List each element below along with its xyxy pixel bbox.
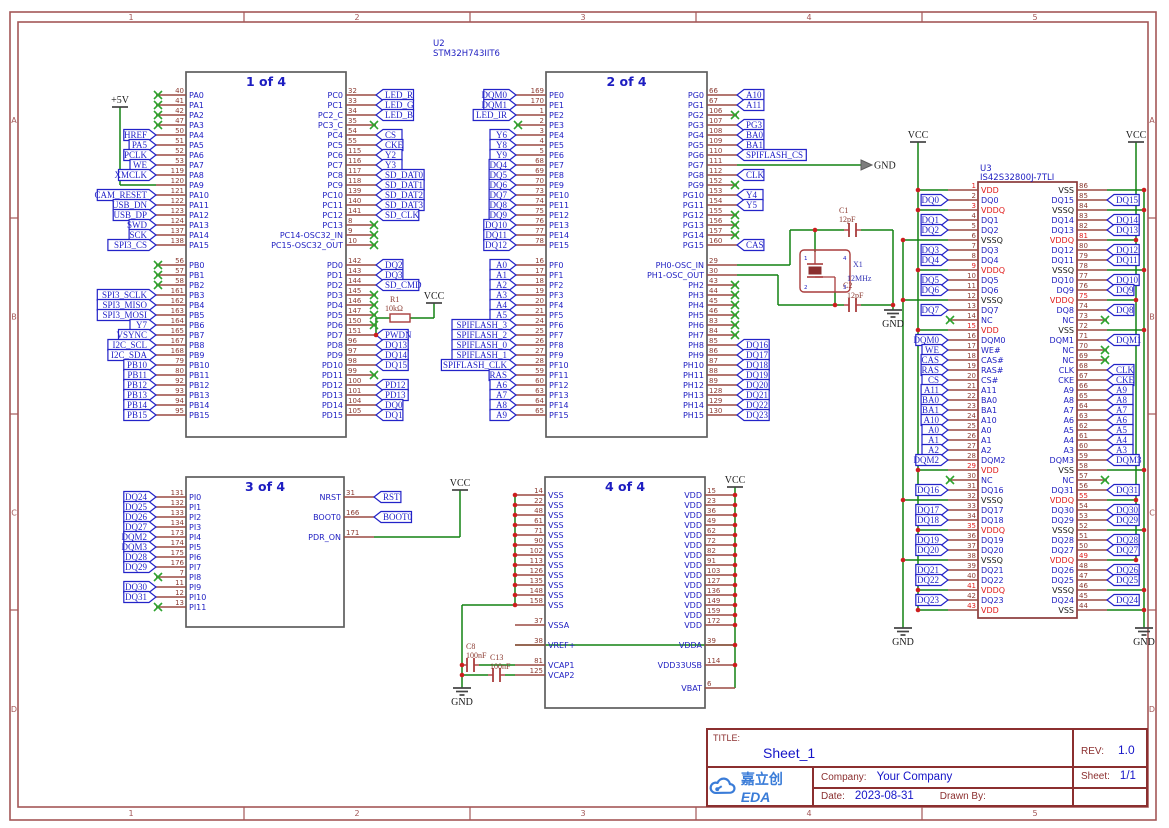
svg-text:76: 76 <box>535 217 544 225</box>
company-value[interactable]: Your Company <box>877 771 953 783</box>
vcc-symbol[interactable]: VCC <box>1126 130 1147 142</box>
net-flag-A3[interactable]: A3 <box>1107 445 1133 456</box>
net-flag-DQ17[interactable]: DQ17 <box>737 350 769 361</box>
net-flag-DQ18[interactable]: DQ18 <box>737 360 769 371</box>
svg-text:A8: A8 <box>496 400 507 410</box>
svg-text:PG4: PG4 <box>688 131 704 140</box>
net-flag-A5[interactable]: A5 <box>1107 425 1133 436</box>
svg-text:58: 58 <box>175 277 184 285</box>
net-flag-DQ23[interactable]: DQ23 <box>916 595 948 606</box>
svg-text:62: 62 <box>707 527 716 535</box>
net-flag-PB12[interactable]: PB12 <box>124 380 156 391</box>
net-flag-DQ4[interactable]: DQ4 <box>921 255 948 266</box>
net-flag-A2[interactable]: A2 <box>490 280 516 291</box>
svg-text:119: 119 <box>171 167 184 175</box>
svg-text:PH6: PH6 <box>688 321 704 330</box>
svg-text:A4: A4 <box>1063 436 1074 445</box>
svg-text:112: 112 <box>709 167 722 175</box>
svg-text:1: 1 <box>128 809 133 818</box>
net-flag-DQ2[interactable]: DQ2 <box>921 225 948 236</box>
net-flag-PD13[interactable]: PD13 <box>376 390 408 401</box>
svg-text:VSS: VSS <box>548 501 564 510</box>
chip-u3-sdram[interactable]: 1VDD2DQ0DQ03VDDQ4DQ1DQ15DQ2DQ26VSSQ7DQ3D… <box>903 182 1144 618</box>
components[interactable]: R110kΩC112pFC212pFC8100nFC13100nF1234X11… <box>385 206 872 682</box>
svg-text:162: 162 <box>171 297 184 305</box>
net-flag-A9[interactable]: A9 <box>1107 385 1133 396</box>
net-flag-A2[interactable]: A2 <box>922 445 948 456</box>
net-flag-BA1[interactable]: BA1 <box>921 405 948 416</box>
chip-u2-block4[interactable]: 4 of 414VSS22VSS48VSS61VSS71VSS90VSS102V… <box>515 477 735 708</box>
chip-u2-block3[interactable]: 3 of 4131PI0DQ24132PI1DQ25133PI2DQ26134P… <box>121 477 412 627</box>
svg-text:PG13: PG13 <box>683 221 704 230</box>
svg-text:DQ22: DQ22 <box>917 575 939 585</box>
date-value[interactable]: 2023-08-31 <box>855 790 914 802</box>
net-flag-WE[interactable]: WE <box>130 160 156 171</box>
net-flag-A10[interactable]: A10 <box>737 90 764 101</box>
net-flag-PWDN[interactable]: PWDN <box>376 330 412 341</box>
svg-text:GND: GND <box>874 161 896 172</box>
net-flag-A0[interactable]: A0 <box>490 260 516 271</box>
svg-text:PA10: PA10 <box>189 191 209 200</box>
net-flag-DQM2[interactable]: DQM2 <box>121 532 156 543</box>
svg-text:NC: NC <box>1062 476 1074 485</box>
svg-text:25: 25 <box>967 422 976 430</box>
net-flag-A6[interactable]: A6 <box>1107 415 1133 426</box>
svg-text:107: 107 <box>709 117 722 125</box>
net-flag-Y5[interactable]: Y5 <box>737 200 763 211</box>
net-flag-CKE[interactable]: CKE <box>376 140 404 151</box>
rev-value[interactable]: 1.0 <box>1118 743 1135 757</box>
svg-text:PI7: PI7 <box>189 563 201 572</box>
net-flag-PB11[interactable]: PB11 <box>124 370 156 381</box>
net-flag-DQM3[interactable]: DQM3 <box>1107 455 1142 466</box>
svg-text:DQ8: DQ8 <box>490 200 508 210</box>
component-C1[interactable]: C112pF <box>839 206 861 237</box>
svg-text:124: 124 <box>171 217 185 225</box>
net-flag-SPI3_MISO[interactable]: SPI3_MISO <box>97 300 156 311</box>
net-flag-DQ31[interactable]: DQ31 <box>1107 485 1139 496</box>
net-flag-SD_CMD[interactable]: SD_CMD <box>376 280 422 291</box>
net-flag-A11[interactable]: A11 <box>921 385 948 396</box>
net-flag-BOOT0[interactable]: BOOT0 <box>374 512 412 523</box>
svg-text:55: 55 <box>348 137 357 145</box>
svg-text:46: 46 <box>1079 582 1088 590</box>
svg-text:DQ7: DQ7 <box>981 306 999 315</box>
net-flag-DQ18[interactable]: DQ18 <box>916 515 948 526</box>
net-flag-DQ3[interactable]: DQ3 <box>921 245 948 256</box>
net-flag-DQ2[interactable]: DQ2 <box>376 260 403 271</box>
svg-text:DQ28: DQ28 <box>125 552 147 562</box>
net-flag-DQ25[interactable]: DQ25 <box>124 502 156 513</box>
net-flag-DQ25[interactable]: DQ25 <box>1107 575 1139 586</box>
svg-text:DQ16: DQ16 <box>746 340 768 350</box>
net-flag-DQ14[interactable]: DQ14 <box>1107 215 1139 226</box>
net-flag-DQM0[interactable]: DQM0 <box>481 90 516 101</box>
net-flag-A8[interactable]: A8 <box>490 400 516 411</box>
plus5v-symbol[interactable]: +5V <box>111 95 130 108</box>
svg-text:PA4: PA4 <box>189 131 204 140</box>
net-flag-DQM1[interactable]: DQM1 <box>481 100 516 111</box>
svg-text:39: 39 <box>707 637 716 645</box>
net-flag-DQ28[interactable]: DQ28 <box>1107 535 1139 546</box>
net-flag-A3[interactable]: A3 <box>490 290 516 301</box>
net-flag-WE[interactable]: WE <box>922 345 948 356</box>
net-flag-A9[interactable]: A9 <box>490 410 516 421</box>
net-flag-DQ6[interactable]: DQ6 <box>489 180 516 191</box>
svg-text:DQ18: DQ18 <box>746 360 768 370</box>
svg-text:21: 21 <box>967 382 976 390</box>
net-flag-A1[interactable]: A1 <box>922 435 948 446</box>
net-flag-DQM3[interactable]: DQM3 <box>121 542 156 553</box>
net-flag-BA0[interactable]: BA0 <box>737 130 764 141</box>
svg-text:PD2: PD2 <box>327 281 343 290</box>
net-flag-DQ5[interactable]: DQ5 <box>489 170 516 181</box>
net-flag-RST[interactable]: RST <box>374 492 401 503</box>
svg-text:1: 1 <box>128 13 133 22</box>
gnd-symbol[interactable]: GND <box>1133 628 1155 648</box>
component-C13[interactable]: C13100nF <box>488 653 511 682</box>
net-flag-CKE[interactable]: CKE <box>1107 375 1135 386</box>
net-flag-SD_DAT3[interactable]: SD_DAT3 <box>376 200 424 211</box>
net-flag-CS[interactable]: CS <box>376 130 402 141</box>
net-flag-PB10[interactable]: PB10 <box>124 360 156 371</box>
net-flag-CLK[interactable]: CLK <box>737 170 765 181</box>
net-flag-RAS[interactable]: RAS <box>921 365 948 376</box>
svg-text:116: 116 <box>348 157 362 165</box>
net-flag-A7[interactable]: A7 <box>1107 405 1133 416</box>
svg-text:66: 66 <box>1079 382 1088 390</box>
net-flag-CLK[interactable]: CLK <box>1107 365 1135 376</box>
net-flag-RAS[interactable]: RAS <box>489 370 516 381</box>
svg-text:79: 79 <box>175 357 184 365</box>
svg-text:DQ0: DQ0 <box>981 196 999 205</box>
net-flag-CAS[interactable]: CAS <box>921 355 948 366</box>
net-flag-DQ7[interactable]: DQ7 <box>921 305 948 316</box>
net-flag-DQ1[interactable]: DQ1 <box>921 215 948 226</box>
net-flag-DQ9[interactable]: DQ9 <box>1107 285 1134 296</box>
svg-text:106: 106 <box>709 107 723 115</box>
net-flag-DQ31[interactable]: DQ31 <box>124 592 156 603</box>
net-flag-PB14[interactable]: PB14 <box>124 400 156 411</box>
net-flag-I2C_SCL[interactable]: I2C_SCL <box>108 340 156 351</box>
net-flag-Y8[interactable]: Y8 <box>490 140 516 151</box>
svg-text:22: 22 <box>534 497 543 505</box>
svg-text:8: 8 <box>972 252 976 260</box>
net-flag-DQ19[interactable]: DQ19 <box>737 370 769 381</box>
net-flag-DQ16[interactable]: DQ16 <box>737 340 769 351</box>
net-flag-DQ26[interactable]: DQ26 <box>1107 565 1139 576</box>
net-flag-DQ21[interactable]: DQ21 <box>737 390 769 401</box>
svg-text:DQ20: DQ20 <box>746 380 768 390</box>
net-flag-DQ1[interactable]: DQ1 <box>376 410 403 421</box>
svg-text:PD14: PD14 <box>322 401 343 410</box>
net-flag-DQ30[interactable]: DQ30 <box>124 582 156 593</box>
svg-text:80: 80 <box>175 367 184 375</box>
svg-text:12pF: 12pF <box>847 291 864 300</box>
net-flag-DQ24[interactable]: DQ24 <box>124 492 156 503</box>
svg-text:A3: A3 <box>496 290 507 300</box>
net-flag-Y2[interactable]: Y2 <box>376 150 402 161</box>
net-flag-DQ30[interactable]: DQ30 <box>1107 505 1139 516</box>
svg-text:22: 22 <box>967 392 976 400</box>
net-flag-DQ20[interactable]: DQ20 <box>737 380 769 391</box>
svg-text:DQM0: DQM0 <box>913 335 939 345</box>
svg-text:VDD: VDD <box>684 521 702 530</box>
net-flag-PCLK[interactable]: PCLK <box>124 150 156 161</box>
net-flag-I2C_SDA[interactable]: I2C_SDA <box>108 350 156 361</box>
net-flag-A10[interactable]: A10 <box>921 415 948 426</box>
net-flag-SPIFLASH_0[interactable]: SPIFLASH_0 <box>452 340 516 351</box>
net-flag-DQ10[interactable]: DQ10 <box>484 220 516 231</box>
drawn-by-label: Drawn By: <box>940 791 986 802</box>
svg-text:129: 129 <box>709 397 722 405</box>
net-flag-SPI3_CS[interactable]: SPI3_CS <box>108 240 156 251</box>
net-flag-DQ19[interactable]: DQ19 <box>916 535 948 546</box>
net-flag-PB13[interactable]: PB13 <box>124 390 156 401</box>
svg-text:SD_CLK: SD_CLK <box>385 210 420 220</box>
net-flag-DQ13[interactable]: DQ13 <box>376 340 408 351</box>
net-flag-DQM0[interactable]: DQM0 <box>913 335 948 346</box>
vcc-symbol[interactable]: VCC <box>424 291 445 303</box>
net-flag-DQ15[interactable]: DQ15 <box>1107 195 1139 206</box>
schematic-canvas[interactable]: 1122334455AABBCCDDR110kΩC112pFC212pFC810… <box>0 0 1169 828</box>
net-flag-DQ22[interactable]: DQ22 <box>737 400 769 411</box>
svg-text:139: 139 <box>348 187 361 195</box>
net-flag-A1[interactable]: A1 <box>490 270 516 281</box>
svg-text:59: 59 <box>535 367 544 375</box>
net-flag-DQ0[interactable]: DQ0 <box>921 195 948 206</box>
net-flag-DQ8[interactable]: DQ8 <box>489 200 516 211</box>
sheet-title[interactable]: Sheet_1 <box>763 745 815 761</box>
svg-text:DQM1: DQM1 <box>1116 335 1142 345</box>
net-flag-DQ0[interactable]: DQ0 <box>376 400 403 411</box>
vcc-symbol[interactable]: VCC <box>908 130 929 142</box>
net-flag-DQ16[interactable]: DQ16 <box>916 485 948 496</box>
net-flag-DQ17[interactable]: DQ17 <box>916 505 948 516</box>
net-flag-PB15[interactable]: PB15 <box>124 410 156 421</box>
net-flag-DQ24[interactable]: DQ24 <box>1107 595 1139 606</box>
net-flag-DQ4[interactable]: DQ4 <box>489 160 516 171</box>
net-flag-SD_DAT2[interactable]: SD_DAT2 <box>376 190 424 201</box>
net-flag-DQ12[interactable]: DQ12 <box>484 240 516 251</box>
net-flag-LED_G[interactable]: LED_G <box>376 100 414 111</box>
net-flag-PD12[interactable]: PD12 <box>376 380 408 391</box>
net-flag-A7[interactable]: A7 <box>490 390 516 401</box>
net-flag-DQ10[interactable]: DQ10 <box>1107 275 1139 286</box>
net-flag-A11[interactable]: A11 <box>737 100 764 111</box>
svg-text:PE3: PE3 <box>549 121 564 130</box>
sheet-value[interactable]: 1/1 <box>1120 770 1136 782</box>
svg-text:PH11: PH11 <box>683 371 704 380</box>
net-flag-DQ20[interactable]: DQ20 <box>916 545 948 556</box>
net-flag-DQM1[interactable]: DQM1 <box>1107 335 1142 346</box>
net-flag-XMCLK[interactable]: XMCLK <box>114 170 156 181</box>
svg-text:3: 3 <box>843 285 847 291</box>
svg-text:WE: WE <box>133 160 147 170</box>
net-flag-DQ14[interactable]: DQ14 <box>376 350 408 361</box>
net-flag-DQ5[interactable]: DQ5 <box>921 275 948 286</box>
svg-text:DQ11: DQ11 <box>1051 256 1074 265</box>
svg-text:PG6: PG6 <box>688 151 704 160</box>
net-flag-LED_B[interactable]: LED_B <box>376 110 414 121</box>
net-flag-A0[interactable]: A0 <box>922 425 948 436</box>
svg-text:PA14: PA14 <box>189 231 209 240</box>
svg-text:156: 156 <box>709 217 723 225</box>
svg-text:96: 96 <box>348 337 357 345</box>
svg-text:DQ27: DQ27 <box>125 522 147 532</box>
chip-u2-block2[interactable]: 2 of 4169PE0DQM0170PE1DQM11PE2LED_IR2PE3… <box>441 72 806 437</box>
svg-text:5: 5 <box>1032 13 1037 22</box>
svg-text:146: 146 <box>348 297 362 305</box>
gnd-symbol[interactable]: GND <box>861 160 896 172</box>
net-flag-DQ29[interactable]: DQ29 <box>1107 515 1139 526</box>
svg-text:1 of 4: 1 of 4 <box>246 74 286 89</box>
net-flag-DQ23[interactable]: DQ23 <box>737 410 769 421</box>
net-flag-A8[interactable]: A8 <box>1107 395 1133 406</box>
net-flag-A6[interactable]: A6 <box>490 380 516 391</box>
chip-u2-block1[interactable]: 1 of 440PA041PA142PA247PA350PA4HREF51PA5… <box>94 72 424 437</box>
net-flag-CAM_RESET[interactable]: CAM_RESET <box>94 190 156 201</box>
svg-text:PD12: PD12 <box>385 380 406 390</box>
svg-text:101: 101 <box>348 387 361 395</box>
svg-text:64: 64 <box>1079 402 1088 410</box>
svg-text:CKE: CKE <box>385 140 404 150</box>
net-flag-SWD[interactable]: SWD <box>127 220 156 231</box>
net-flag-Y9[interactable]: Y9 <box>490 150 516 161</box>
svg-text:126: 126 <box>530 567 544 575</box>
svg-text:PD15: PD15 <box>322 411 343 420</box>
svg-text:PF10: PF10 <box>549 361 569 370</box>
svg-text:PCLK: PCLK <box>124 150 148 160</box>
net-flag-DQ11[interactable]: DQ11 <box>1107 255 1139 266</box>
net-flag-CS[interactable]: CS <box>922 375 948 386</box>
net-flag-DQ11[interactable]: DQ11 <box>484 230 516 241</box>
net-flag-SPIFLASH_3[interactable]: SPIFLASH_3 <box>452 320 516 331</box>
component-C8[interactable]: C8100nF <box>462 642 487 672</box>
net-flag-BA1[interactable]: BA1 <box>737 140 764 151</box>
svg-text:DQ17: DQ17 <box>981 506 1004 515</box>
net-flag-USB_DP[interactable]: USB_DP <box>113 210 156 221</box>
net-flag-PG3[interactable]: PG3 <box>737 120 764 131</box>
net-flag-A5[interactable]: A5 <box>490 310 516 321</box>
net-flag-SD_CLK[interactable]: SD_CLK <box>376 210 420 221</box>
net-flag-DQ28[interactable]: DQ28 <box>124 552 156 563</box>
svg-text:VDD: VDD <box>684 501 702 510</box>
svg-text:Y8: Y8 <box>496 140 507 150</box>
net-flag-DQ21[interactable]: DQ21 <box>916 565 948 576</box>
svg-text:PI6: PI6 <box>189 553 201 562</box>
svg-text:PA5: PA5 <box>132 140 148 150</box>
svg-text:91: 91 <box>707 557 716 565</box>
net-flag-DQ3[interactable]: DQ3 <box>376 270 403 281</box>
gnd-symbol[interactable]: GND <box>882 310 904 330</box>
net-flag-LED_R[interactable]: LED_R <box>376 90 414 101</box>
net-flag-Y6[interactable]: Y6 <box>490 130 516 141</box>
svg-text:159: 159 <box>707 607 720 615</box>
net-flag-DQ12[interactable]: DQ12 <box>1107 245 1139 256</box>
net-flag-SCK[interactable]: SCK <box>129 230 156 241</box>
vcc-symbol[interactable]: VCC <box>450 478 471 490</box>
net-flag-SPI3_MOSI[interactable]: SPI3_MOSI <box>97 310 156 321</box>
svg-text:PF3: PF3 <box>549 291 564 300</box>
svg-text:DQ29: DQ29 <box>1051 516 1074 525</box>
svg-text:DQ12: DQ12 <box>1051 246 1074 255</box>
net-flag-DQ6[interactable]: DQ6 <box>921 285 948 296</box>
net-flag-A4[interactable]: A4 <box>490 300 516 311</box>
svg-text:VDDQ: VDDQ <box>1050 296 1074 305</box>
vcc-symbol[interactable]: VCC <box>725 475 746 487</box>
net-flag-DQ29[interactable]: DQ29 <box>124 562 156 573</box>
net-flag-DQ27[interactable]: DQ27 <box>124 522 156 533</box>
svg-text:A2: A2 <box>496 280 507 290</box>
svg-text:161: 161 <box>171 287 184 295</box>
net-flag-VSYNC[interactable]: VSYNC <box>116 330 156 341</box>
gnd-symbol[interactable]: GND <box>892 628 914 648</box>
svg-text:1: 1 <box>540 107 544 115</box>
svg-text:LED_R: LED_R <box>385 90 413 100</box>
svg-text:44: 44 <box>1079 602 1088 610</box>
net-flag-SD_DAT0[interactable]: SD_DAT0 <box>376 170 424 181</box>
svg-text:SPI3_MISO: SPI3_MISO <box>102 300 147 310</box>
svg-text:74: 74 <box>535 197 544 205</box>
svg-text:33: 33 <box>348 97 357 105</box>
net-flag-DQ26[interactable]: DQ26 <box>124 512 156 523</box>
net-flag-HREF[interactable]: HREF <box>124 130 156 141</box>
net-flag-DQ8[interactable]: DQ8 <box>1107 305 1134 316</box>
net-flag-Y7[interactable]: Y7 <box>130 320 156 331</box>
net-flag-BA0[interactable]: BA0 <box>921 395 948 406</box>
svg-text:PC0: PC0 <box>328 91 344 100</box>
svg-text:VDDQ: VDDQ <box>981 206 1005 215</box>
svg-text:151: 151 <box>348 327 361 335</box>
svg-text:PF0: PF0 <box>549 261 564 270</box>
net-flag-DQ9[interactable]: DQ9 <box>489 210 516 221</box>
net-flag-SD_DAT1[interactable]: SD_DAT1 <box>376 180 424 191</box>
svg-text:154: 154 <box>709 197 723 205</box>
net-flag-Y3[interactable]: Y3 <box>376 160 402 171</box>
net-flag-SPIFLASH_2[interactable]: SPIFLASH_2 <box>452 330 516 341</box>
svg-text:2: 2 <box>354 809 359 818</box>
net-flag-USB_DN[interactable]: USB_DN <box>112 200 156 211</box>
net-flag-A4[interactable]: A4 <box>1107 435 1133 446</box>
net-flag-SPIFLASH_CS[interactable]: SPIFLASH_CS <box>737 150 806 161</box>
svg-text:DQ11: DQ11 <box>485 230 507 240</box>
net-flag-LED_IR[interactable]: LED_IR <box>473 110 516 121</box>
net-flag-SPIFLASH_1[interactable]: SPIFLASH_1 <box>452 350 516 361</box>
net-flag-PA5[interactable]: PA5 <box>129 140 156 151</box>
svg-text:DQ13: DQ13 <box>1051 226 1074 235</box>
net-flag-SPI3_SCLK[interactable]: SPI3_SCLK <box>97 290 156 301</box>
net-flag-Y4[interactable]: Y4 <box>737 190 763 201</box>
gnd-symbol[interactable]: GND <box>451 688 473 708</box>
svg-text:A10: A10 <box>924 415 940 425</box>
component-X1[interactable]: 1234X112MHz <box>800 250 872 292</box>
net-flag-DQ22[interactable]: DQ22 <box>916 575 948 586</box>
svg-text:DQ19: DQ19 <box>917 535 939 545</box>
svg-text:4: 4 <box>843 256 847 262</box>
company-label: Company: <box>821 772 867 783</box>
svg-text:VSS: VSS <box>1058 186 1074 195</box>
svg-text:55: 55 <box>1079 492 1088 500</box>
svg-text:61: 61 <box>534 517 543 525</box>
net-flag-DQ27[interactable]: DQ27 <box>1107 545 1139 556</box>
net-flag-DQ13[interactable]: DQ13 <box>1107 225 1139 236</box>
net-flag-SPIFLASH_CLK[interactable]: SPIFLASH_CLK <box>441 360 516 371</box>
net-flag-DQM2[interactable]: DQM2 <box>913 455 948 466</box>
net-flag-DQ7[interactable]: DQ7 <box>489 190 516 201</box>
net-flag-DQ15[interactable]: DQ15 <box>376 360 408 371</box>
net-flag-CAS[interactable]: CAS <box>737 240 764 251</box>
